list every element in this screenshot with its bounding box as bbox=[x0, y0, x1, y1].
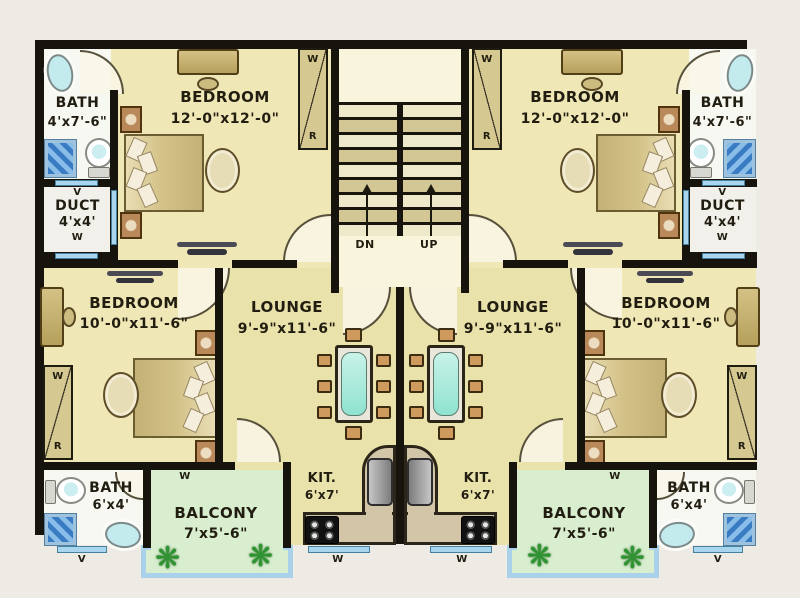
lounge-dims: 9'-9"x11'-6" bbox=[215, 322, 359, 336]
wardrobe-r-label: R bbox=[45, 442, 71, 452]
wall bbox=[215, 268, 223, 470]
window-label: W bbox=[323, 555, 353, 565]
wardrobe-r-label: R bbox=[474, 132, 500, 142]
window-label: W bbox=[44, 233, 111, 243]
plant-icon: ❋ bbox=[527, 543, 552, 571]
window-label: W bbox=[689, 233, 756, 243]
toilet-tank bbox=[690, 167, 712, 178]
ceiling-fan bbox=[107, 270, 163, 284]
kitchen-dims: 6'x7' bbox=[449, 489, 507, 501]
stair-dn-label: DN bbox=[348, 239, 382, 250]
nightstand bbox=[195, 330, 217, 356]
bath-top-door-arc bbox=[676, 50, 720, 94]
bedroom-top-label: BEDROOM bbox=[485, 90, 665, 105]
window bbox=[693, 546, 743, 553]
stove bbox=[305, 516, 339, 544]
chair bbox=[376, 380, 391, 393]
window bbox=[55, 180, 98, 186]
toilet-tank bbox=[45, 480, 56, 504]
stair-wall bbox=[461, 49, 469, 293]
window-label: W bbox=[605, 472, 625, 482]
plant-icon: ❋ bbox=[248, 543, 273, 571]
bedroom-mid-dims: 10'-0"x11'-6" bbox=[47, 317, 221, 331]
bed bbox=[583, 358, 667, 438]
balcony-dims: 7'x5'-6" bbox=[524, 527, 644, 541]
bedroom-top-dims: 12'-0"x12'-0" bbox=[130, 112, 320, 126]
stair-treads-up bbox=[403, 102, 461, 236]
stair-treads-down bbox=[339, 102, 397, 236]
wardrobe-r-label: R bbox=[729, 442, 755, 452]
bath-bottom-label: BATH bbox=[80, 481, 142, 495]
stair-arrow-head bbox=[426, 184, 436, 193]
wardrobe-w-label: W bbox=[474, 55, 500, 65]
balcony-label: BALCONY bbox=[156, 506, 276, 521]
vent-label: V bbox=[703, 555, 733, 565]
wall bbox=[503, 260, 568, 268]
wall bbox=[649, 462, 657, 548]
party-wall bbox=[396, 287, 404, 544]
window bbox=[55, 253, 98, 259]
window bbox=[702, 253, 745, 259]
vent-label: V bbox=[44, 188, 111, 198]
vent-label: V bbox=[689, 188, 756, 198]
window bbox=[430, 546, 492, 553]
ceiling-fan bbox=[637, 270, 693, 284]
bedroom-mid-dims: 10'-0"x11'-6" bbox=[579, 317, 753, 331]
bath-bottom-label: BATH bbox=[658, 481, 720, 495]
bath-top-dims: 4'x7'-6" bbox=[684, 116, 761, 129]
window-label: W bbox=[447, 555, 477, 565]
toilet bbox=[85, 138, 113, 168]
bath-top-label: BATH bbox=[689, 96, 756, 110]
wardrobe: W R bbox=[43, 365, 73, 460]
chair bbox=[317, 406, 332, 419]
bath-top-dims: 4'x7'-6" bbox=[39, 116, 116, 129]
window bbox=[308, 546, 370, 553]
bedroom-top-dims: 12'-0"x12'-0" bbox=[480, 112, 670, 126]
kitchen-label: KIT. bbox=[293, 472, 351, 485]
bedroom-mid-label: BEDROOM bbox=[585, 296, 747, 311]
nightstand bbox=[658, 212, 680, 239]
lounge-label: LOUNGE bbox=[453, 300, 573, 315]
dining-table bbox=[427, 345, 465, 423]
counter-joint bbox=[366, 510, 392, 520]
wall bbox=[232, 260, 297, 268]
chair bbox=[317, 354, 332, 367]
wall bbox=[577, 268, 585, 470]
balcony-label: BALCONY bbox=[524, 506, 644, 521]
stair-arrow-head bbox=[362, 184, 372, 193]
chair bbox=[438, 426, 455, 440]
wall bbox=[43, 462, 235, 470]
fridge bbox=[367, 458, 393, 506]
window bbox=[57, 546, 107, 553]
stair-wall bbox=[331, 49, 339, 293]
wardrobe-w-label: W bbox=[729, 372, 755, 382]
wall bbox=[622, 260, 757, 268]
stair-divider bbox=[397, 102, 403, 236]
side-table bbox=[205, 148, 240, 193]
chair bbox=[409, 354, 424, 367]
vent-label: V bbox=[67, 555, 97, 565]
bath-bottom-dims: 6'x4' bbox=[658, 499, 720, 512]
window bbox=[111, 190, 117, 245]
bed bbox=[596, 134, 676, 212]
chair bbox=[376, 406, 391, 419]
wardrobe-w-label: W bbox=[45, 372, 71, 382]
lounge-dims: 9'-9"x11'-6" bbox=[441, 322, 585, 336]
nightstand bbox=[120, 212, 142, 239]
counter-joint bbox=[408, 510, 434, 520]
table-glass bbox=[433, 352, 459, 416]
chair bbox=[468, 354, 483, 367]
stair-arrow bbox=[430, 194, 432, 236]
kitchen-dims: 6'x7' bbox=[293, 489, 351, 501]
bath-top-label: BATH bbox=[44, 96, 111, 110]
side-table bbox=[661, 372, 697, 418]
pillow bbox=[136, 183, 158, 208]
bath-bottom-dims: 6'x4' bbox=[80, 499, 142, 512]
bedroom-top-label: BEDROOM bbox=[135, 90, 315, 105]
table-glass bbox=[341, 352, 367, 416]
wardrobe-w-label: W bbox=[300, 55, 326, 65]
dresser bbox=[561, 49, 623, 75]
plant-icon: ❋ bbox=[620, 545, 645, 573]
wall bbox=[565, 462, 757, 470]
shower bbox=[44, 139, 77, 178]
kitchen-label: KIT. bbox=[449, 472, 507, 485]
chair bbox=[376, 354, 391, 367]
pillow bbox=[182, 408, 204, 433]
wall bbox=[43, 260, 178, 268]
balcony-dims: 7'x5'-6" bbox=[156, 527, 276, 541]
bedroom-mid-label: BEDROOM bbox=[53, 296, 215, 311]
stove bbox=[461, 516, 495, 544]
window-label: W bbox=[175, 472, 195, 482]
ceiling-fan bbox=[563, 240, 623, 256]
bed bbox=[133, 358, 217, 438]
side-table bbox=[103, 372, 139, 418]
chair bbox=[468, 380, 483, 393]
duct-label: DUCT bbox=[689, 199, 756, 213]
chair bbox=[468, 406, 483, 419]
shower bbox=[44, 513, 77, 546]
stair-arrow bbox=[366, 194, 368, 236]
dresser bbox=[177, 49, 239, 75]
chair bbox=[317, 380, 332, 393]
fridge bbox=[407, 458, 433, 506]
toilet-tank bbox=[744, 480, 755, 504]
chair bbox=[409, 406, 424, 419]
pillow bbox=[595, 408, 617, 433]
window bbox=[702, 180, 745, 186]
side-table bbox=[560, 148, 595, 193]
toilet-tank bbox=[88, 167, 110, 178]
wall bbox=[143, 462, 151, 548]
duct-dims: 4'x4' bbox=[44, 216, 111, 229]
plant-icon: ❋ bbox=[155, 545, 180, 573]
ceiling-fan bbox=[177, 240, 237, 256]
toilet bbox=[687, 138, 715, 168]
wardrobe-r-label: R bbox=[300, 132, 326, 142]
wall bbox=[509, 462, 517, 548]
wall bbox=[283, 462, 291, 548]
duct-label: DUCT bbox=[44, 199, 111, 213]
bed bbox=[124, 134, 204, 212]
wardrobe: W R bbox=[727, 365, 757, 460]
chair bbox=[409, 380, 424, 393]
lounge-label: LOUNGE bbox=[227, 300, 347, 315]
stair-up-label: UP bbox=[412, 239, 446, 250]
chair bbox=[345, 426, 362, 440]
floor-plan: ❋ ❋ W R W R BATH 4'x7'-6" BEDROOM 12'-0"… bbox=[0, 0, 800, 598]
nightstand bbox=[583, 330, 605, 356]
shower bbox=[723, 513, 756, 546]
duct-dims: 4'x4' bbox=[689, 216, 756, 229]
pillow bbox=[641, 183, 663, 208]
stair-landing-top bbox=[339, 49, 461, 102]
dining-table bbox=[335, 345, 373, 423]
shower bbox=[723, 139, 756, 178]
